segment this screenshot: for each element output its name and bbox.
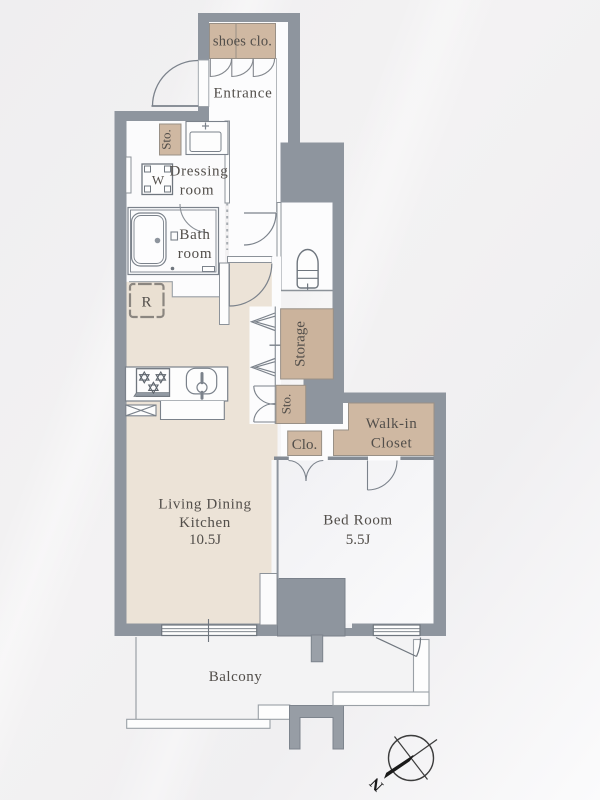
- svg-text:Sto.: Sto.: [279, 394, 294, 415]
- svg-text:Kitchen: Kitchen: [179, 515, 231, 531]
- svg-text:Storage: Storage: [293, 321, 309, 367]
- svg-text:Sto.: Sto.: [158, 129, 173, 150]
- svg-text:Bed Room: Bed Room: [323, 513, 392, 529]
- svg-text:Clo.: Clo.: [292, 437, 317, 453]
- svg-text:5.5J: 5.5J: [346, 532, 371, 548]
- svg-text:Bath: Bath: [179, 227, 210, 243]
- svg-text:10.5J: 10.5J: [189, 532, 221, 548]
- svg-text:room: room: [178, 246, 212, 262]
- svg-text:Dressing: Dressing: [170, 164, 229, 180]
- svg-text:room: room: [180, 183, 214, 199]
- svg-text:Entrance: Entrance: [214, 86, 273, 102]
- svg-text:Closet: Closet: [371, 436, 413, 452]
- svg-text:shoes clo.: shoes clo.: [213, 34, 272, 50]
- svg-text:Balcony: Balcony: [209, 669, 263, 685]
- svg-text:W: W: [152, 173, 165, 188]
- svg-text:Walk-in: Walk-in: [366, 416, 417, 432]
- svg-text:R: R: [141, 295, 151, 311]
- svg-text:Living Dining: Living Dining: [158, 497, 251, 513]
